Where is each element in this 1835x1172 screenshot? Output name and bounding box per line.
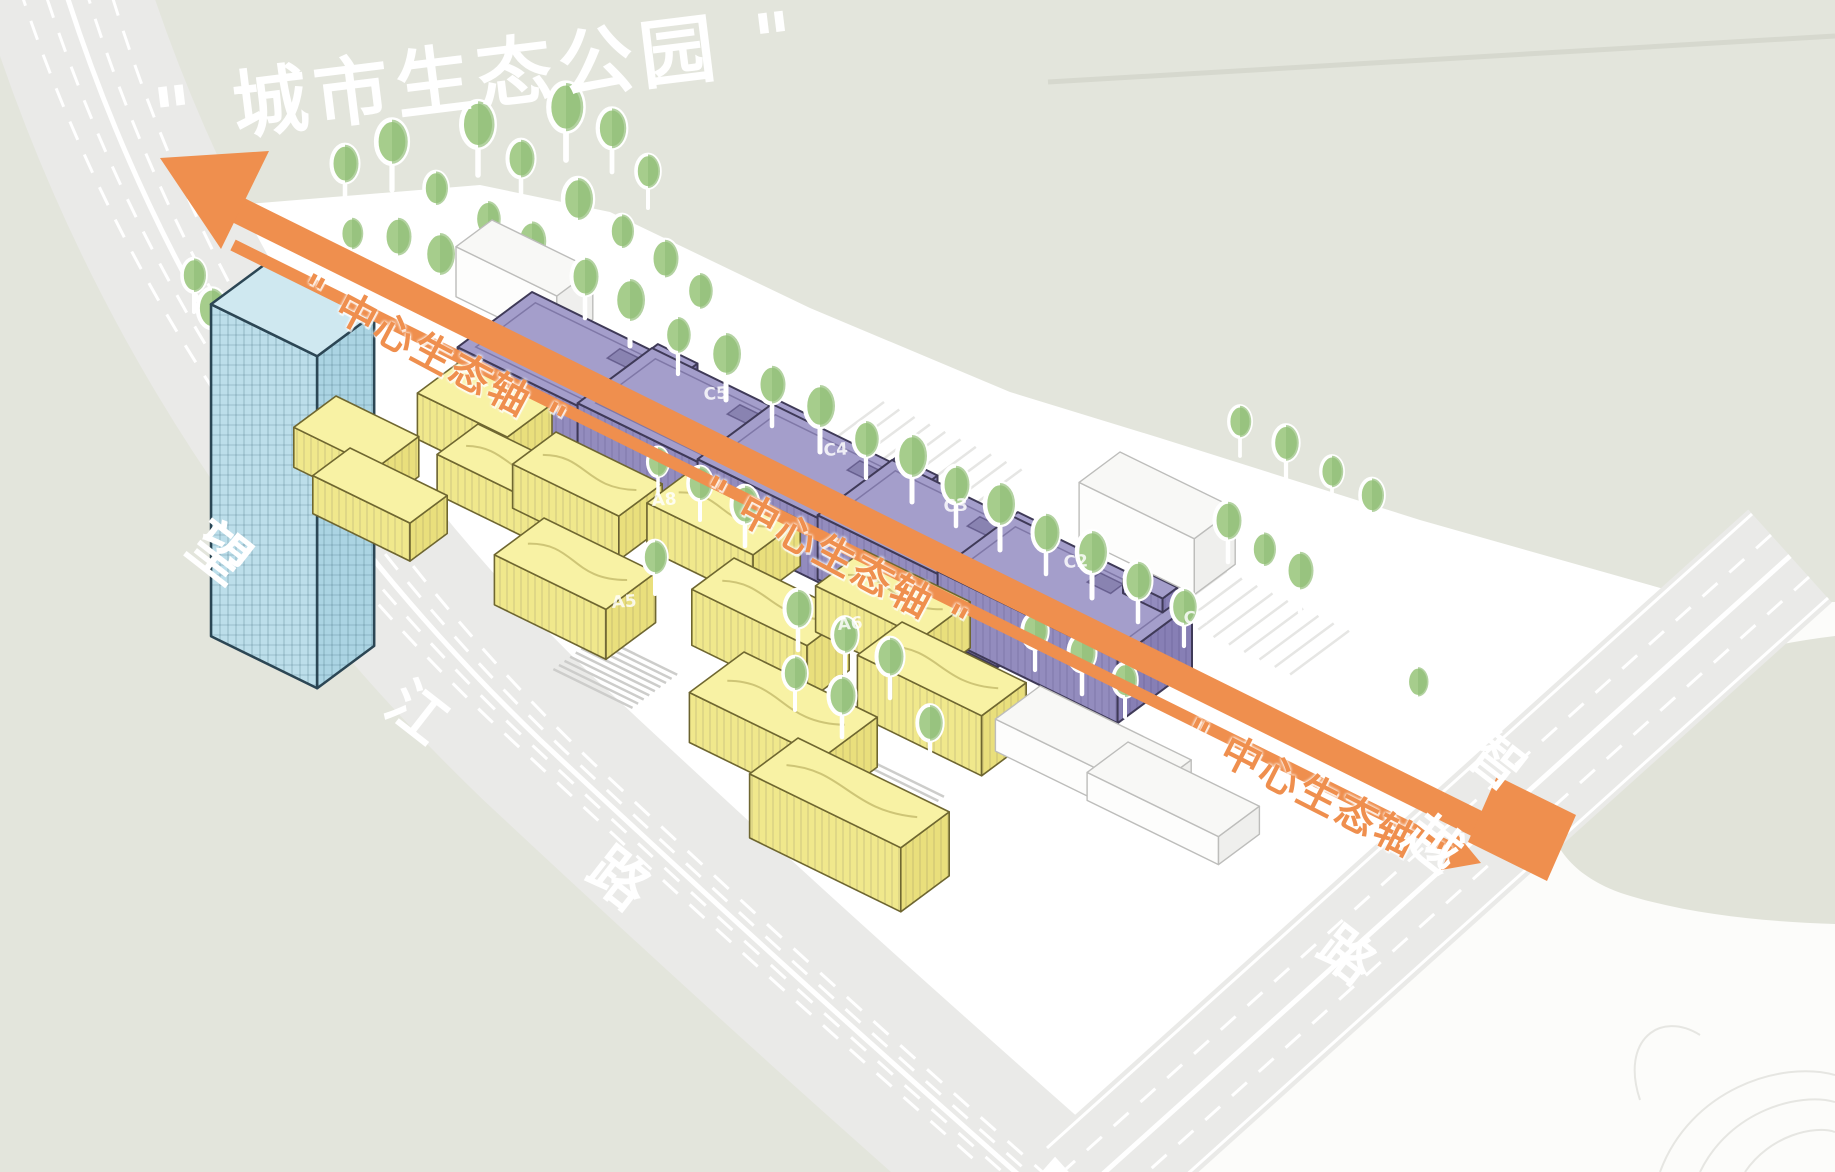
building-label-c3: C3 (943, 495, 969, 517)
campus-axis-diagram: C5C4C3C2C1A8A5A6 " 城市生态公园 " " 中心生态轴 " " … (0, 0, 1835, 1172)
building-label-c4: C4 (823, 439, 849, 461)
building-label-c5: C5 (703, 383, 729, 405)
building-label-a5: A5 (611, 591, 637, 613)
building-label-a6: A6 (837, 613, 863, 635)
building-label-c1: C1 (1183, 607, 1209, 629)
building-label-a8: A8 (651, 489, 677, 511)
building-label-c2: C2 (1063, 551, 1089, 573)
